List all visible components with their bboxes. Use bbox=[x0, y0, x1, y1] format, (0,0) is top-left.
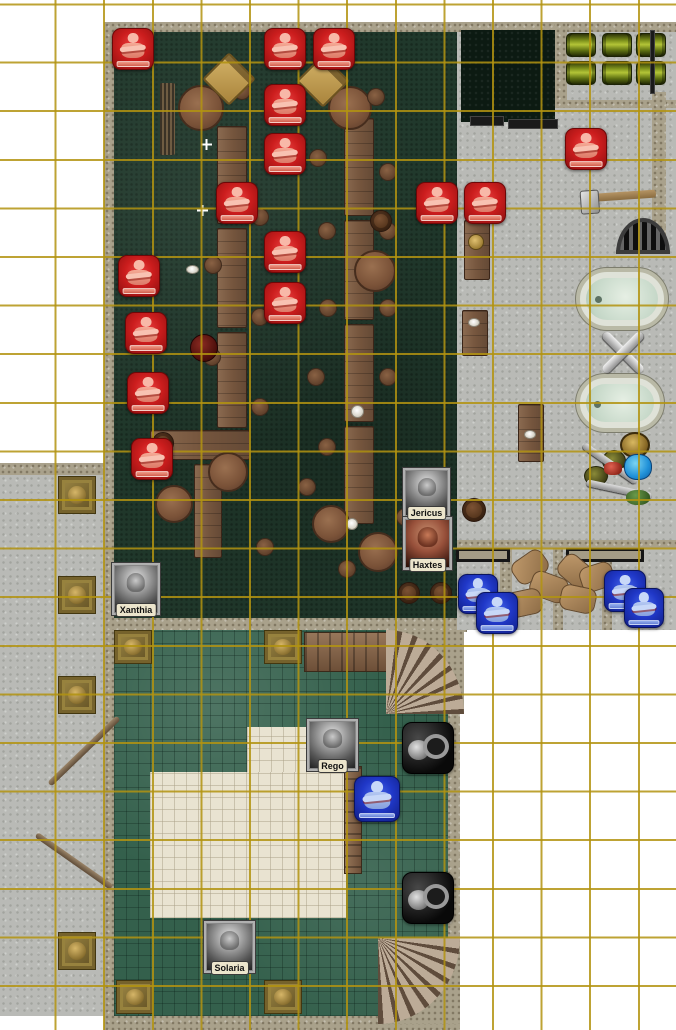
token-name-banner bbox=[269, 264, 302, 269]
red-status-token[interactable] bbox=[464, 182, 506, 224]
token-name-banner bbox=[136, 471, 169, 476]
character-token-solaria[interactable]: Solaria bbox=[204, 921, 255, 973]
token-name-banner bbox=[221, 215, 254, 220]
character-name-label: Haxtes bbox=[409, 558, 447, 572]
token-name-banner bbox=[123, 288, 156, 293]
token-name-banner bbox=[132, 405, 165, 410]
token-name-banner bbox=[421, 215, 454, 220]
red-status-token[interactable] bbox=[112, 28, 154, 70]
token-name-banner bbox=[269, 315, 302, 320]
blue-status-token[interactable] bbox=[354, 776, 400, 822]
token-name-banner bbox=[269, 117, 302, 122]
character-name-label: Jericus bbox=[407, 506, 447, 520]
red-status-token[interactable] bbox=[125, 312, 167, 354]
map-canvas[interactable]: XanthiaJericusHaxtesRegoSolaria bbox=[0, 0, 676, 1030]
red-status-token[interactable] bbox=[264, 282, 306, 324]
token-name-banner bbox=[318, 61, 351, 66]
character-token-rego[interactable]: Rego bbox=[307, 719, 358, 771]
character-token-xanthia[interactable]: Xanthia bbox=[112, 563, 160, 615]
character-name-label: Xanthia bbox=[116, 603, 157, 617]
character-name-label: Solaria bbox=[210, 961, 248, 975]
token-name-banner bbox=[130, 345, 163, 350]
red-status-token[interactable] bbox=[264, 133, 306, 175]
character-token-haxtes[interactable]: Haxtes bbox=[403, 517, 452, 570]
token-name-banner bbox=[469, 215, 502, 220]
red-status-token[interactable] bbox=[131, 438, 173, 480]
red-status-token[interactable] bbox=[565, 128, 607, 170]
red-status-token[interactable] bbox=[264, 231, 306, 273]
character-token-jericus[interactable]: Jericus bbox=[403, 468, 450, 518]
token-name-banner bbox=[117, 61, 150, 66]
red-status-token[interactable] bbox=[118, 255, 160, 297]
token-name-banner bbox=[269, 61, 302, 66]
red-status-token[interactable] bbox=[216, 182, 258, 224]
token-layer: XanthiaJericusHaxtesRegoSolaria bbox=[0, 0, 676, 1030]
token-name-banner bbox=[359, 813, 395, 819]
token-name-banner bbox=[628, 620, 659, 625]
red-status-token[interactable] bbox=[264, 84, 306, 126]
red-status-token[interactable] bbox=[313, 28, 355, 70]
blue-status-token[interactable] bbox=[476, 592, 518, 634]
pot-pile-token[interactable] bbox=[402, 872, 454, 924]
pot-pile-token[interactable] bbox=[402, 722, 454, 774]
red-status-token[interactable] bbox=[416, 182, 458, 224]
red-status-token[interactable] bbox=[127, 372, 169, 414]
blue-status-token[interactable] bbox=[624, 588, 664, 628]
red-status-token[interactable] bbox=[264, 28, 306, 70]
token-name-banner bbox=[481, 625, 514, 630]
token-name-banner bbox=[269, 166, 302, 171]
character-name-label: Rego bbox=[317, 759, 348, 773]
token-name-banner bbox=[570, 161, 603, 166]
